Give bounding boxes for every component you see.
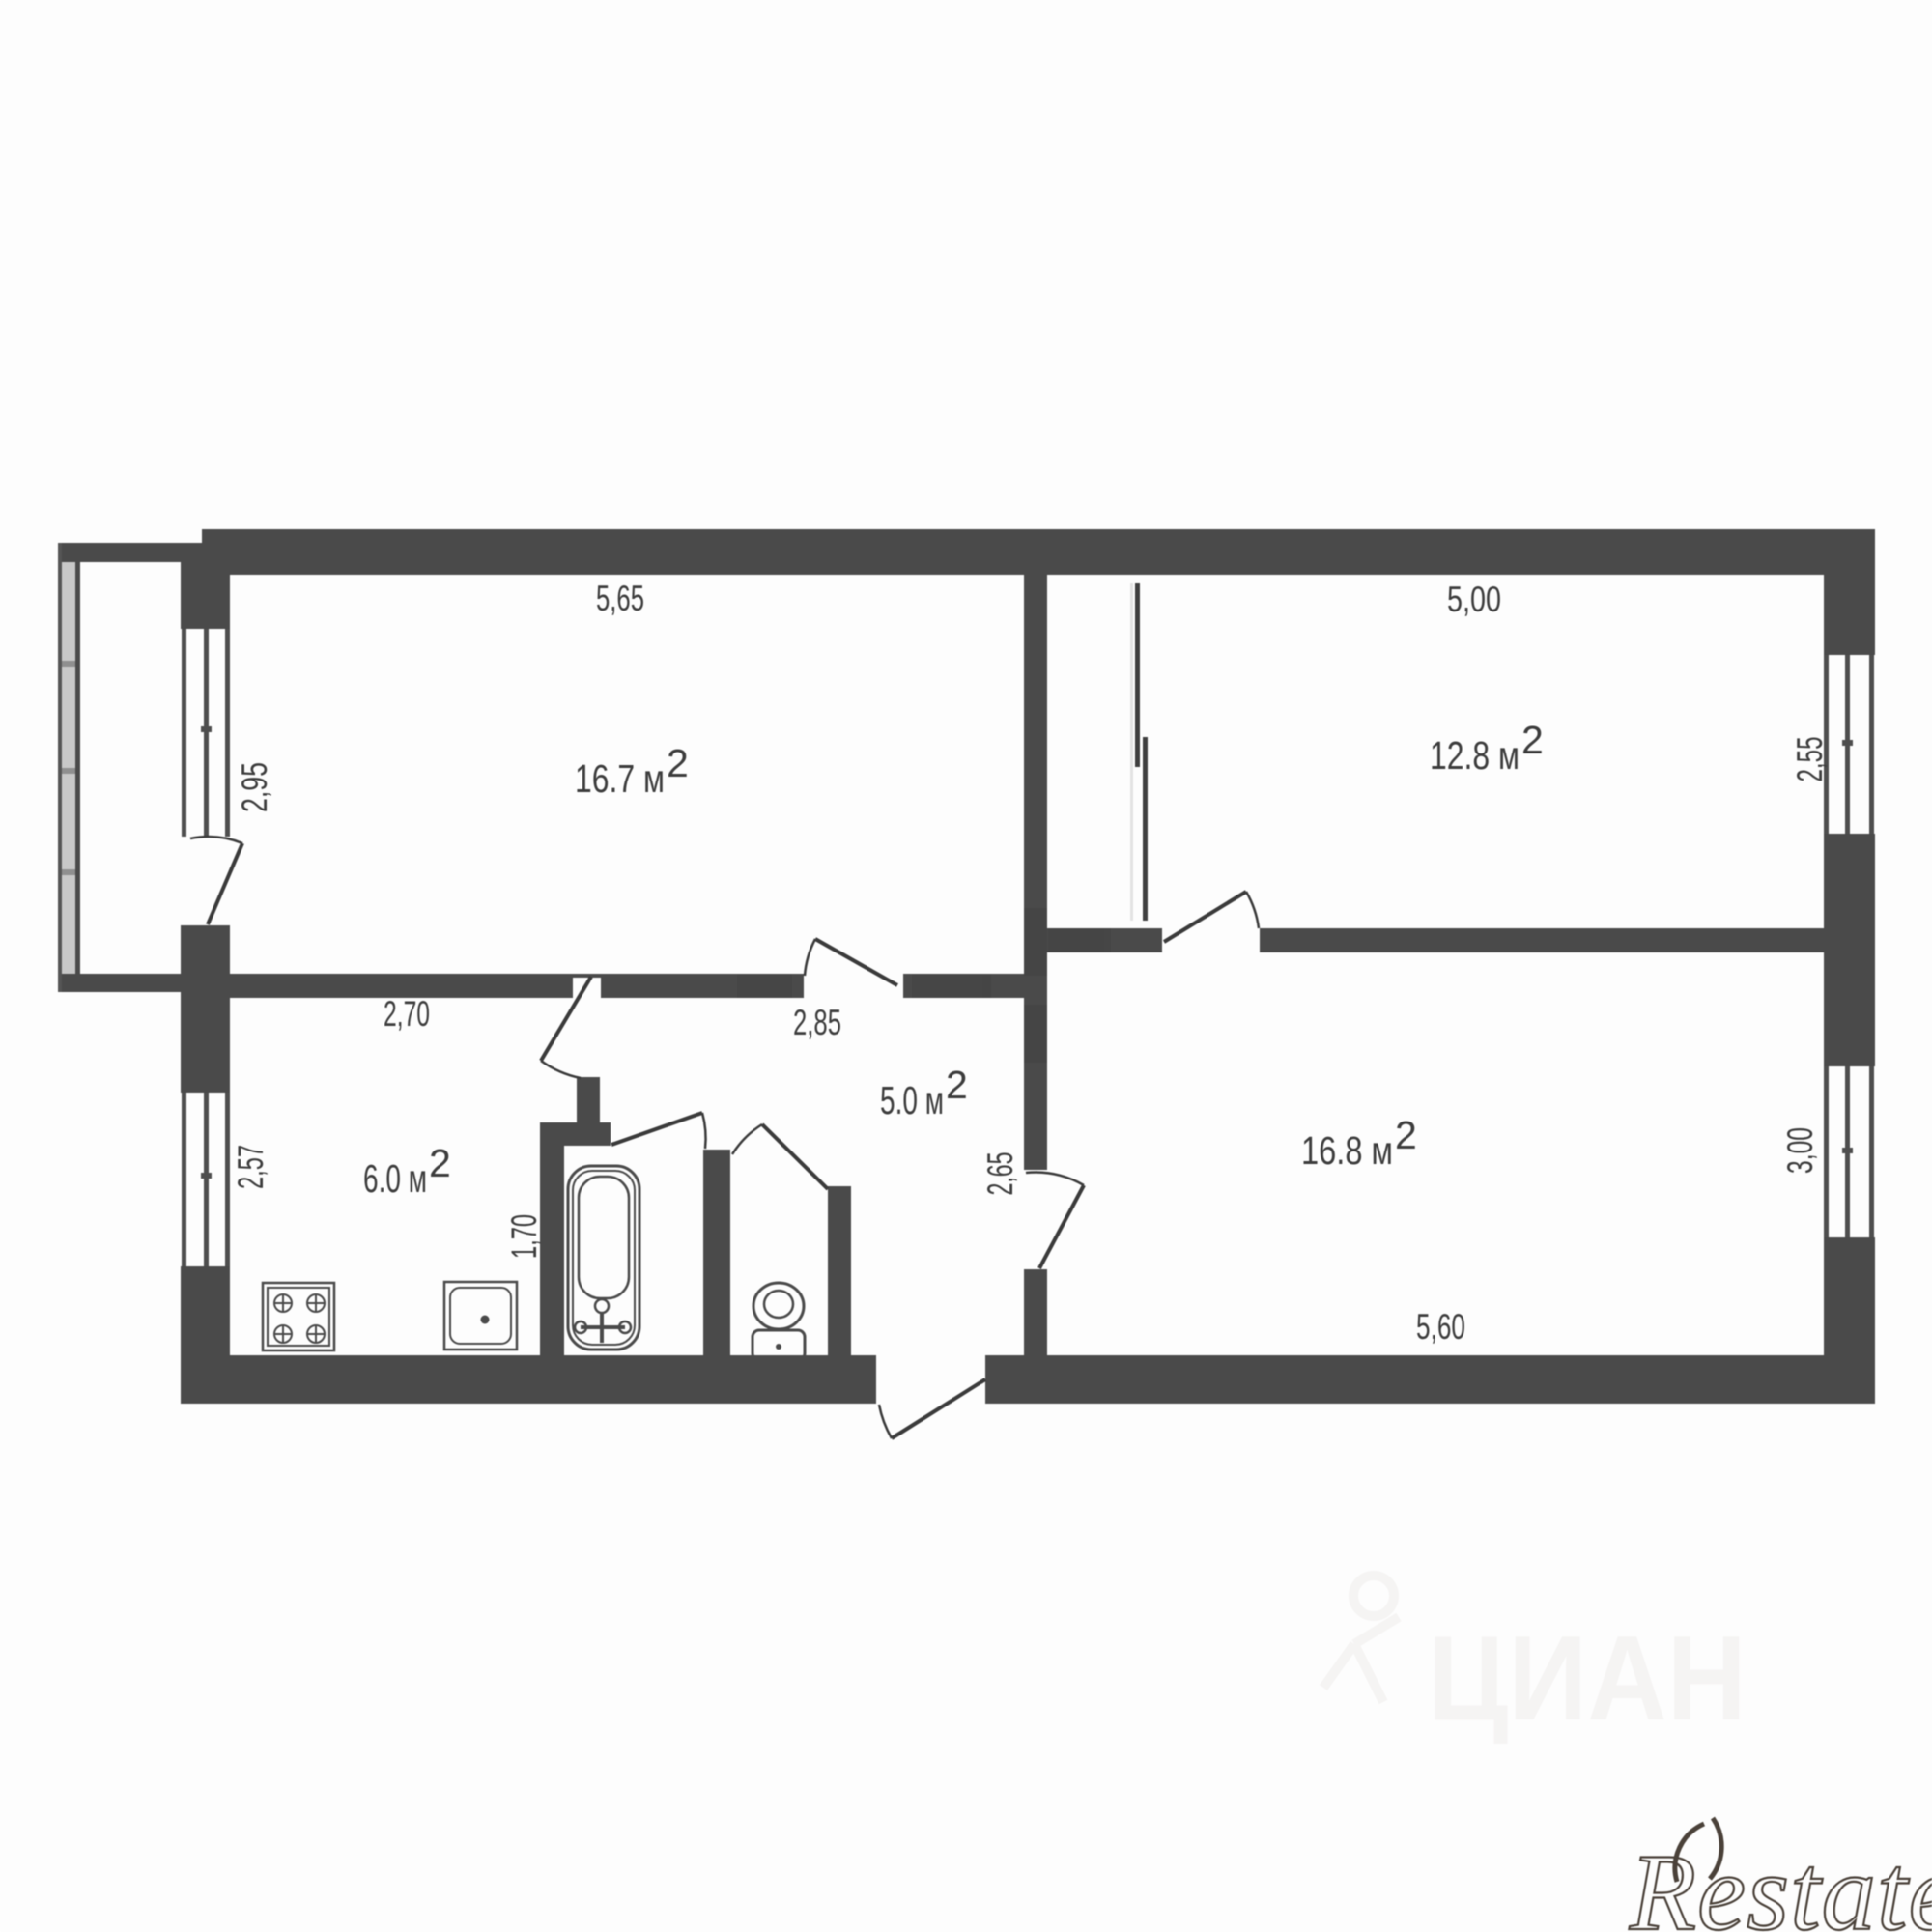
- svg-text:5.0 м: 5.0 м: [880, 1078, 944, 1122]
- svg-text:5,60: 5,60: [1416, 1307, 1465, 1347]
- svg-text:2: 2: [1395, 1113, 1417, 1157]
- svg-text:2: 2: [667, 741, 689, 785]
- svg-text:2: 2: [946, 1063, 968, 1107]
- svg-text:16.7 м: 16.7 м: [575, 756, 665, 801]
- svg-text:ЦИАН: ЦИАН: [1428, 1612, 1747, 1746]
- svg-text:2,55: 2,55: [1790, 737, 1830, 782]
- svg-text:2,85: 2,85: [793, 1003, 841, 1042]
- svg-text:5,00: 5,00: [1447, 580, 1501, 619]
- svg-text:Restate: Restate: [1629, 1833, 1932, 1932]
- svg-text:2: 2: [429, 1141, 451, 1185]
- svg-text:12.8 м: 12.8 м: [1430, 733, 1520, 778]
- svg-text:2,95: 2,95: [235, 762, 274, 812]
- svg-text:5,65: 5,65: [596, 579, 644, 618]
- svg-text:2,65: 2,65: [980, 1152, 1020, 1196]
- svg-text:2: 2: [1521, 718, 1544, 762]
- svg-text:6.0 м: 6.0 м: [363, 1156, 427, 1201]
- svg-text:3,00: 3,00: [1780, 1127, 1820, 1174]
- svg-text:1,70: 1,70: [504, 1214, 544, 1259]
- svg-text:2,57: 2,57: [231, 1145, 270, 1189]
- svg-text:2,70: 2,70: [384, 994, 430, 1034]
- svg-text:16.8 м: 16.8 м: [1301, 1128, 1393, 1173]
